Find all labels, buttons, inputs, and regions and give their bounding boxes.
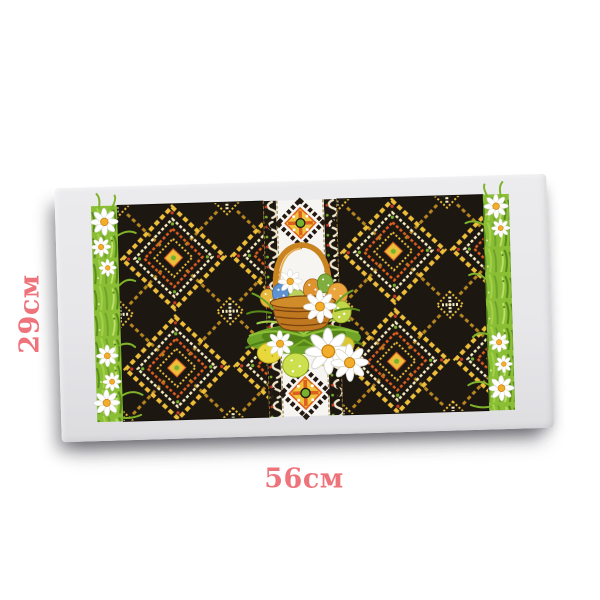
towel-print-graphic	[91, 194, 515, 422]
towel-print-area	[91, 194, 515, 422]
product-photo: 29см 56см	[0, 0, 600, 600]
towel-fabric	[54, 174, 553, 442]
embroidery-panel-right	[337, 195, 489, 415]
embroidery-panel-left	[117, 201, 269, 421]
height-dimension-label: 29см	[15, 274, 46, 353]
width-dimension-label: 56см	[264, 464, 343, 495]
